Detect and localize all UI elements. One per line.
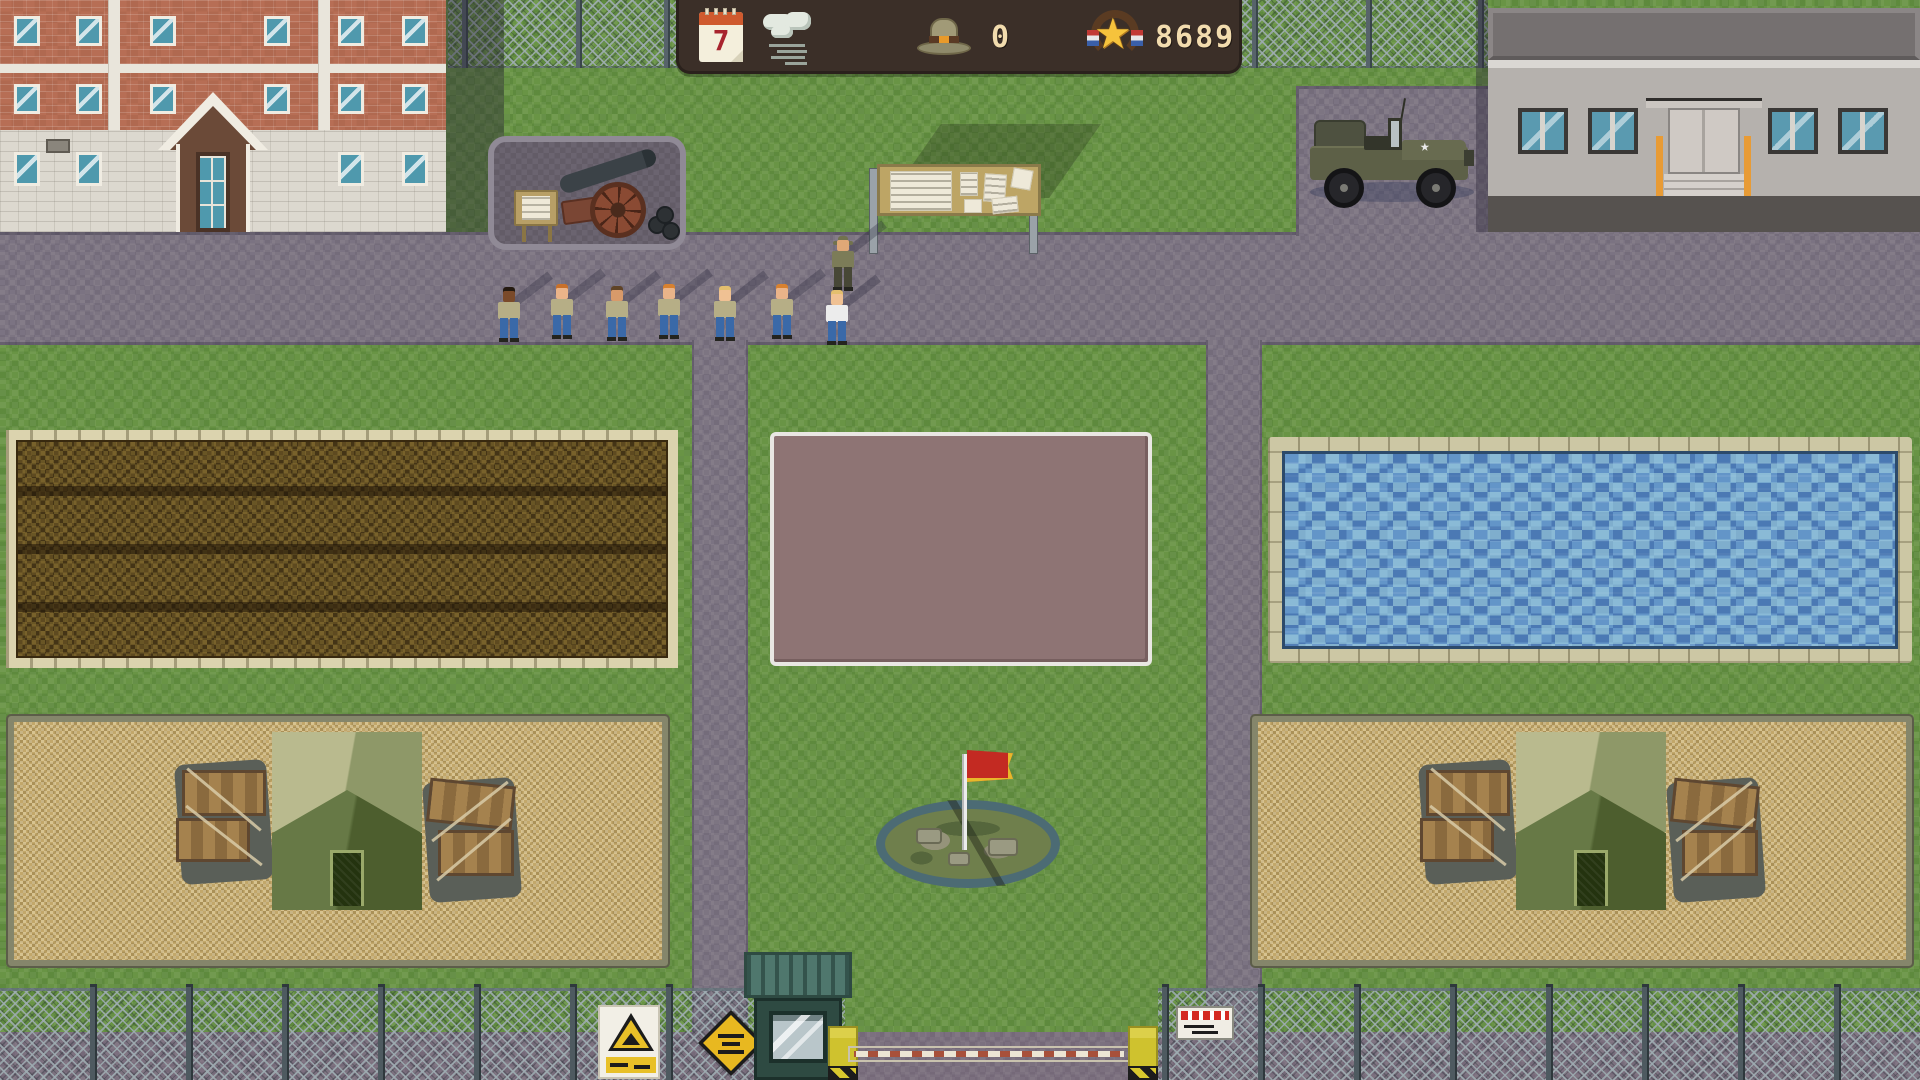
calendar-icon[interactable]: 7 — [699, 12, 743, 62]
fence-post — [1546, 984, 1553, 1080]
window — [1768, 108, 1818, 154]
fence-post — [186, 984, 193, 1080]
handrail — [1656, 136, 1663, 202]
perimeter-fence-top-right — [1240, 0, 1488, 68]
mud-field-surface — [16, 440, 668, 658]
window — [76, 16, 102, 46]
gate-barrier-arm[interactable] — [848, 1046, 1130, 1062]
fence-post — [1162, 984, 1169, 1080]
dust-line — [785, 62, 807, 65]
booth-window — [769, 1011, 827, 1063]
cloud — [771, 26, 793, 38]
cannon-memorial[interactable] — [488, 136, 686, 250]
roof — [1488, 8, 1920, 60]
entrance-door[interactable] — [196, 152, 230, 232]
fence-post — [1252, 0, 1258, 68]
headquarters-building[interactable] — [1488, 8, 1920, 232]
flag-pole — [962, 754, 967, 850]
fence-post — [474, 984, 481, 1080]
perimeter-fence-bottom-right — [1158, 988, 1920, 1080]
dust-line — [777, 50, 807, 53]
calendar-ring — [723, 8, 727, 15]
calendar-ring — [714, 8, 718, 15]
weather-clouds-icon[interactable] — [763, 12, 819, 62]
fence-post — [1642, 984, 1649, 1080]
bumper — [1464, 150, 1474, 166]
fascia — [1488, 60, 1920, 68]
army-jeep[interactable]: ★ — [1306, 98, 1478, 210]
star-insignia-icon: ★ — [1420, 138, 1430, 154]
window — [14, 152, 40, 186]
fence-post — [666, 984, 673, 1080]
window — [14, 16, 40, 46]
main-road-horizontal — [0, 232, 1920, 345]
army-tent[interactable] — [1516, 732, 1666, 910]
tent-entrance — [1574, 850, 1608, 906]
rock — [988, 838, 1018, 856]
entrance-door[interactable] — [1668, 108, 1740, 174]
road-vertical-left — [692, 340, 748, 1080]
hat-brim — [917, 41, 971, 55]
rock — [948, 852, 970, 866]
army-tent[interactable] — [272, 732, 422, 910]
sign-text-dash — [610, 1063, 628, 1067]
vent — [46, 139, 70, 153]
day-number: 7 — [699, 24, 743, 57]
cannonball — [656, 206, 674, 224]
window — [264, 84, 290, 114]
dust-line — [771, 56, 805, 59]
recruit-count: 0 — [991, 20, 1011, 55]
window — [76, 152, 102, 186]
window — [1838, 108, 1888, 154]
window — [338, 16, 364, 46]
calendar-ring — [705, 8, 709, 15]
handrail — [1744, 136, 1751, 202]
posted-note — [1010, 167, 1033, 190]
crate-stack — [1418, 752, 1518, 892]
sign-text-dash — [1184, 1025, 1214, 1028]
bulletin-board[interactable] — [865, 148, 1065, 248]
gate-notice-sign[interactable] — [1176, 1006, 1234, 1040]
stone-ring — [876, 800, 1060, 888]
mud-training-field[interactable] — [6, 430, 678, 668]
fence-post — [1366, 0, 1372, 68]
fence-post — [1258, 984, 1265, 1080]
crate-stack — [174, 752, 274, 892]
window — [338, 84, 364, 114]
swimming-pool[interactable] — [1268, 437, 1912, 663]
flag-monument[interactable] — [868, 742, 1072, 894]
fence-post — [1450, 984, 1457, 1080]
window — [338, 152, 364, 186]
red-flag — [967, 750, 1013, 782]
fence-post — [282, 984, 289, 1080]
gold-star: ★ — [1094, 10, 1132, 58]
posted-notice — [890, 171, 952, 211]
posted-note — [964, 199, 982, 213]
tent-yard-right[interactable] — [1252, 716, 1912, 966]
door-canopy — [1646, 98, 1762, 108]
game-viewport: ★ — [0, 0, 1920, 1080]
jeep-seats — [1364, 136, 1390, 150]
hat-buckle — [939, 36, 949, 43]
fence-post — [1834, 984, 1841, 1080]
window — [264, 16, 290, 46]
hud-bar: 7 0 ★ 8689 — [676, 0, 1242, 74]
drill-hat-icon[interactable] — [917, 16, 971, 60]
tent-entrance — [330, 850, 364, 906]
plaque-paper — [522, 196, 550, 220]
booth-roof — [744, 952, 852, 998]
wheel — [1416, 168, 1456, 208]
crate-stack — [422, 770, 522, 910]
floor-band — [0, 64, 446, 73]
calendar-ring — [732, 8, 736, 15]
fence-post — [664, 0, 670, 68]
sign-text-dash — [722, 1042, 740, 1046]
hazard-stripe-base — [1128, 1066, 1158, 1080]
windshield — [1388, 118, 1402, 150]
fence-post — [570, 984, 577, 1080]
hubcap — [1340, 184, 1348, 192]
rock — [916, 828, 942, 844]
warning-sign[interactable] — [598, 1005, 660, 1079]
fence-post — [1738, 984, 1745, 1080]
window — [402, 84, 428, 114]
hazard-stripe-base — [828, 1066, 858, 1080]
window — [1588, 108, 1638, 154]
fence-post — [90, 984, 97, 1080]
barracks-building[interactable] — [0, 0, 446, 232]
ribbon-right — [1131, 30, 1143, 46]
wheel — [1324, 168, 1364, 208]
sign-text-dash — [718, 1050, 744, 1054]
memorial-plaque — [514, 190, 558, 226]
fence-post — [378, 984, 385, 1080]
posted-note — [960, 172, 978, 196]
fence-post — [576, 0, 582, 68]
medal-star-icon[interactable]: ★ — [1087, 8, 1143, 68]
window — [402, 152, 428, 186]
tent-yard-left[interactable] — [8, 716, 668, 966]
window — [1518, 108, 1568, 154]
window — [14, 84, 40, 114]
fence-post — [1354, 984, 1361, 1080]
cannon-wheel — [590, 182, 646, 238]
sign-text-dash — [634, 1065, 650, 1069]
building-base — [1488, 196, 1920, 232]
hubcap — [1432, 184, 1440, 192]
crate-stack — [1666, 770, 1766, 910]
posted-note — [991, 196, 1019, 215]
parade-ground-slab[interactable] — [770, 432, 1152, 666]
window — [150, 16, 176, 46]
red-stripe-row — [1181, 1011, 1229, 1020]
window — [76, 84, 102, 114]
pool-water — [1282, 451, 1898, 649]
window — [402, 16, 428, 46]
dust-line — [769, 44, 805, 47]
barrier-post — [1128, 1026, 1158, 1080]
board-face — [877, 164, 1041, 216]
sign-text-dash — [718, 1034, 744, 1038]
window — [150, 84, 176, 114]
cannonball — [662, 222, 680, 240]
jeep-hood — [1402, 140, 1466, 160]
score-value: 8689 — [1155, 20, 1235, 55]
sign-text-dash — [1192, 1031, 1218, 1034]
